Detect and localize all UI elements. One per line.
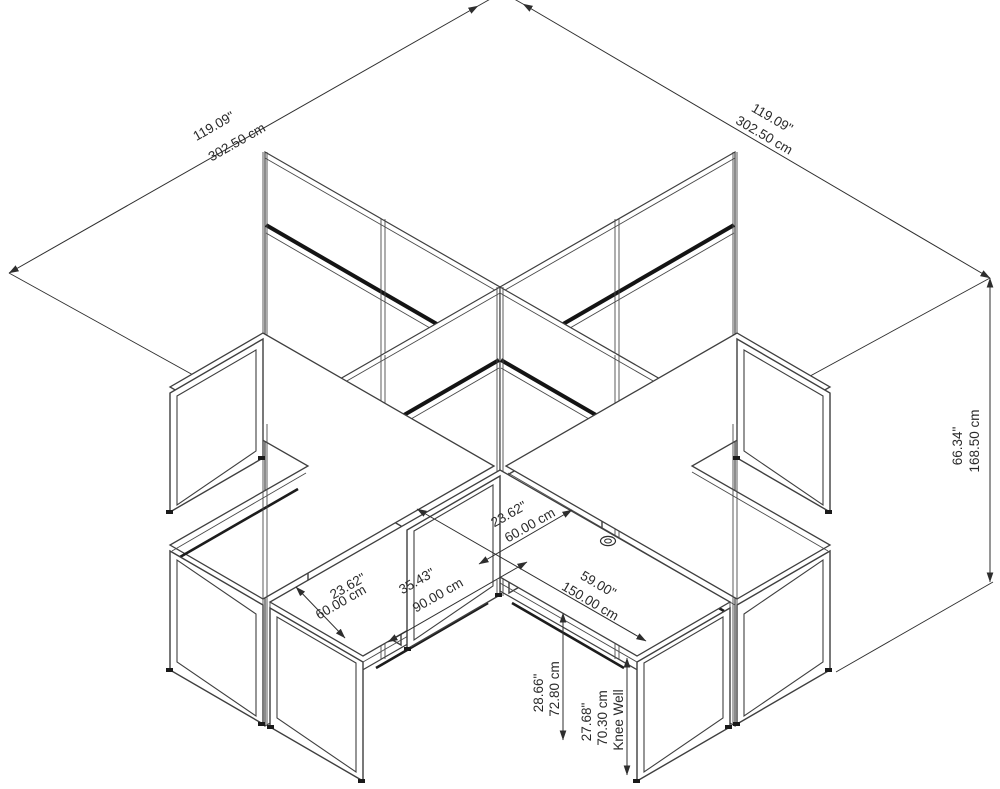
dim-knee-well: 27.68" 70.30 cm Knee Well: [579, 658, 627, 775]
grommet-hole: [601, 536, 616, 545]
dim-overall-left: 119.09" 302.50 cm: [9, 6, 478, 273]
dim-panel-height-inches: 66.34": [950, 427, 965, 466]
dim-desk-height: 28.66" 72.80 cm: [531, 613, 563, 740]
dim-panel-height: 66.34" 168.50 cm: [836, 278, 993, 672]
technical-drawing: 119.09" 302.50 cm 119.09" 302.50 cm 66.3…: [0, 0, 1000, 789]
drawing-canvas: 119.09" 302.50 cm 119.09" 302.50 cm 66.3…: [0, 0, 1000, 789]
dim-knee-well-note: Knee Well: [611, 689, 626, 750]
dim-desk-height-cm: 72.80 cm: [547, 661, 562, 717]
dim-desk-height-inches: 28.66": [531, 674, 546, 713]
dim-knee-well-inches: 27.68": [579, 703, 594, 742]
dim-knee-well-cm: 70.30 cm: [595, 690, 610, 746]
dim-panel-height-cm: 168.50 cm: [967, 409, 982, 472]
